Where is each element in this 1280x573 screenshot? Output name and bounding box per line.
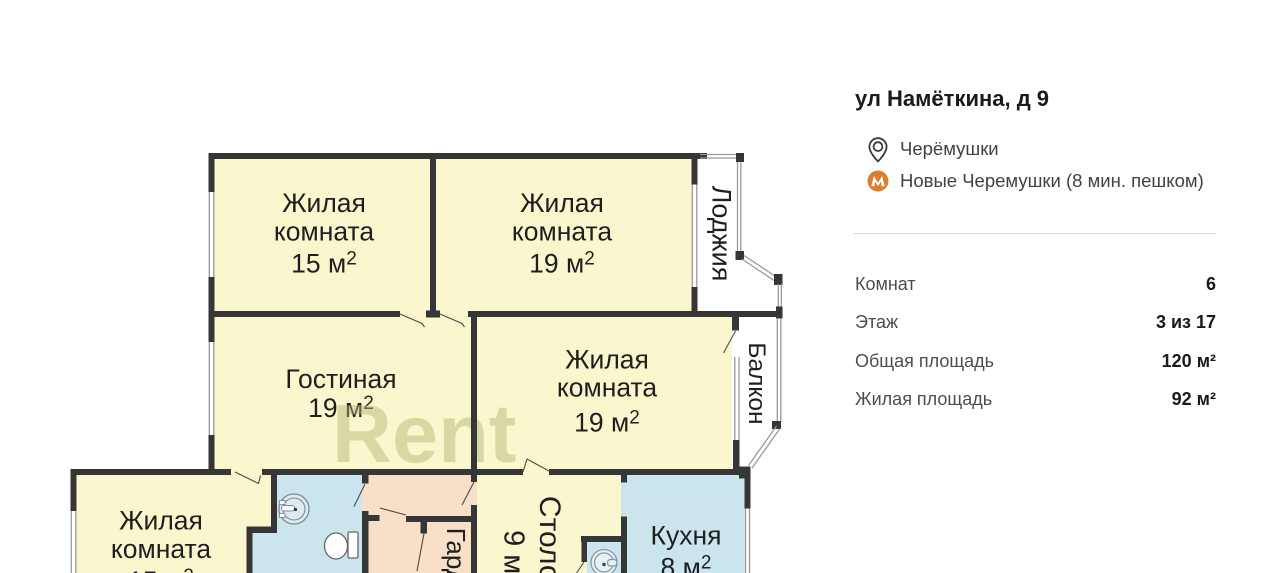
svg-text:Жилая: Жилая: [282, 188, 366, 218]
svg-text:комната: комната: [512, 217, 612, 247]
svg-text:8 м2: 8 м2: [661, 553, 712, 573]
svg-text:9 м2: 9 м2: [498, 530, 532, 573]
svg-text:Гардероб: Гардероб: [441, 528, 471, 573]
svg-text:15 м2: 15 м2: [128, 566, 194, 573]
svg-text:комната: комната: [274, 217, 374, 247]
svg-text:комната: комната: [557, 373, 657, 403]
svg-text:комната: комната: [111, 534, 211, 564]
svg-text:Жилая: Жилая: [119, 506, 203, 536]
svg-text:Лоджия: Лоджия: [707, 186, 737, 282]
svg-text:Балкон: Балкон: [743, 342, 770, 424]
svg-text:Столовая: Столовая: [533, 496, 566, 573]
svg-text:Жилая: Жилая: [565, 345, 649, 375]
svg-text:Кухня: Кухня: [651, 521, 722, 551]
svg-text:Жилая: Жилая: [520, 188, 604, 218]
svg-text:Rent: Rent: [332, 387, 516, 480]
